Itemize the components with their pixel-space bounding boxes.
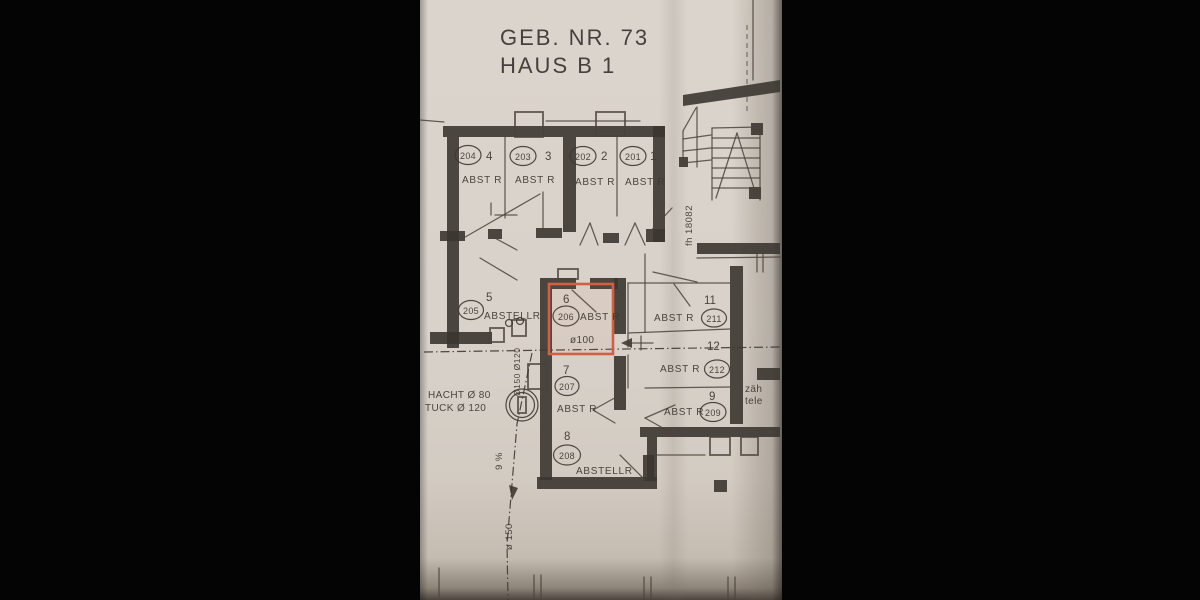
room-207-id: 207 bbox=[559, 382, 575, 392]
room-206-id: 206 bbox=[558, 312, 574, 322]
room-207-label: ABST R bbox=[557, 404, 597, 415]
room-208-unit: 8 bbox=[564, 431, 570, 443]
room-205-id: 205 bbox=[463, 306, 479, 316]
direction-arrow-head-left bbox=[621, 338, 632, 348]
annotation-slope: 9 % bbox=[494, 452, 505, 470]
door-swing bbox=[590, 223, 598, 245]
room-209-id: 209 bbox=[705, 408, 721, 418]
wall-room7-right bbox=[614, 356, 626, 410]
wall-below-stair bbox=[697, 243, 780, 254]
shaft-box bbox=[710, 437, 730, 455]
annotation-meter-line2: tele bbox=[745, 396, 763, 407]
door-swing-room211 bbox=[674, 284, 690, 306]
door-swing bbox=[480, 258, 517, 280]
door-swing bbox=[580, 223, 590, 245]
pipe-shaft-core bbox=[518, 397, 526, 413]
wall-right-block bbox=[730, 266, 743, 424]
annotation-meter-line1: zäh bbox=[745, 384, 762, 395]
room-202-id: 202 bbox=[575, 152, 591, 162]
room-204-id: 204 bbox=[460, 151, 476, 161]
room-211-label: ABST R bbox=[654, 313, 694, 324]
chimney-box bbox=[558, 269, 578, 279]
wall-stub bbox=[646, 229, 665, 242]
room-211-unit: 11 bbox=[704, 295, 716, 307]
room-201-id: 201 bbox=[625, 152, 641, 162]
partition-11-12 bbox=[628, 329, 730, 333]
wall-room8-bottom bbox=[537, 477, 657, 489]
room-207-unit: 7 bbox=[563, 365, 569, 377]
room-206-label: ABST R bbox=[580, 312, 620, 323]
room-209-label: ABST R bbox=[664, 407, 704, 418]
room-203-id: 203 bbox=[515, 152, 531, 162]
room-212-label: ABST R bbox=[660, 364, 700, 375]
wall-stub bbox=[603, 233, 619, 243]
room-201-unit: 1 bbox=[650, 151, 656, 163]
door-swing bbox=[493, 237, 517, 250]
edge-line bbox=[420, 120, 444, 122]
partition-12-9 bbox=[645, 387, 730, 388]
door-swing bbox=[653, 272, 697, 282]
room-202-label: ABST R bbox=[575, 177, 615, 188]
plan-title-line2: HAUS B 1 bbox=[500, 53, 616, 78]
wall-room5-bottom bbox=[430, 332, 492, 344]
corridor-line bbox=[697, 257, 780, 258]
wall-corridor-vert bbox=[647, 437, 657, 481]
room-203-label: ABST R bbox=[515, 175, 555, 186]
annotation-pipe-mid: Ø150 Ø120 bbox=[512, 348, 522, 396]
floorplan-drawing: GEB. NR. 73 HAUS B 1 204 4 ABST R 203 3 … bbox=[420, 0, 782, 600]
room-202-unit: 2 bbox=[601, 151, 607, 163]
room-206-unit: 6 bbox=[563, 294, 569, 306]
stair-newel-post bbox=[751, 123, 763, 135]
fixture-box bbox=[512, 320, 526, 336]
fixture-box bbox=[490, 328, 504, 342]
annotation-pipe-bottom: ø 150 bbox=[504, 523, 515, 550]
screenshot-stage: GEB. NR. 73 HAUS B 1 204 4 ABST R 203 3 … bbox=[0, 0, 1200, 600]
wall-left bbox=[447, 137, 459, 348]
wall-room6-right bbox=[614, 278, 626, 334]
room-212-id: 212 bbox=[709, 365, 725, 375]
wall-stub bbox=[536, 228, 562, 238]
annotation-shaft-line2: TUCK Ø 120 bbox=[425, 403, 486, 414]
room-204-label: ABST R bbox=[462, 175, 502, 186]
column-solid bbox=[714, 480, 727, 492]
shaft-box bbox=[741, 437, 758, 455]
direction-arrow-head-down bbox=[509, 485, 518, 500]
floorplan-photo: GEB. NR. 73 HAUS B 1 204 4 ABST R 203 3 … bbox=[420, 0, 782, 600]
room-203-unit: 3 bbox=[545, 151, 551, 163]
door-swing bbox=[635, 223, 645, 245]
room-208-label: ABSTELLR bbox=[576, 466, 633, 477]
wall-top bbox=[443, 126, 665, 137]
room-205-unit: 5 bbox=[486, 292, 492, 304]
room-208-id: 208 bbox=[559, 451, 575, 461]
room-204-unit: 4 bbox=[486, 151, 493, 163]
door-swing bbox=[625, 223, 635, 245]
wall-corridor-right bbox=[640, 427, 780, 437]
wall-right-piece bbox=[757, 368, 780, 380]
plan-title-line1: GEB. NR. 73 bbox=[500, 25, 649, 50]
room-212-unit: 12 bbox=[707, 341, 720, 353]
wall-room8-left bbox=[540, 362, 552, 480]
pipe-shaft-circle bbox=[506, 389, 538, 421]
room-205-label: ABSTELLR bbox=[484, 311, 541, 322]
annotation-shaft-line1: HACHT Ø 80 bbox=[428, 390, 491, 401]
annotation-stair-note: fh 18082 bbox=[684, 205, 695, 246]
room-209-unit: 9 bbox=[709, 391, 715, 403]
room-206-diameter: ø100 bbox=[570, 335, 594, 346]
wall-stair-top bbox=[683, 80, 780, 106]
room-201-label: ABST R bbox=[625, 177, 665, 188]
stair-winder-edge bbox=[683, 108, 696, 131]
room-211-id: 211 bbox=[706, 314, 721, 324]
